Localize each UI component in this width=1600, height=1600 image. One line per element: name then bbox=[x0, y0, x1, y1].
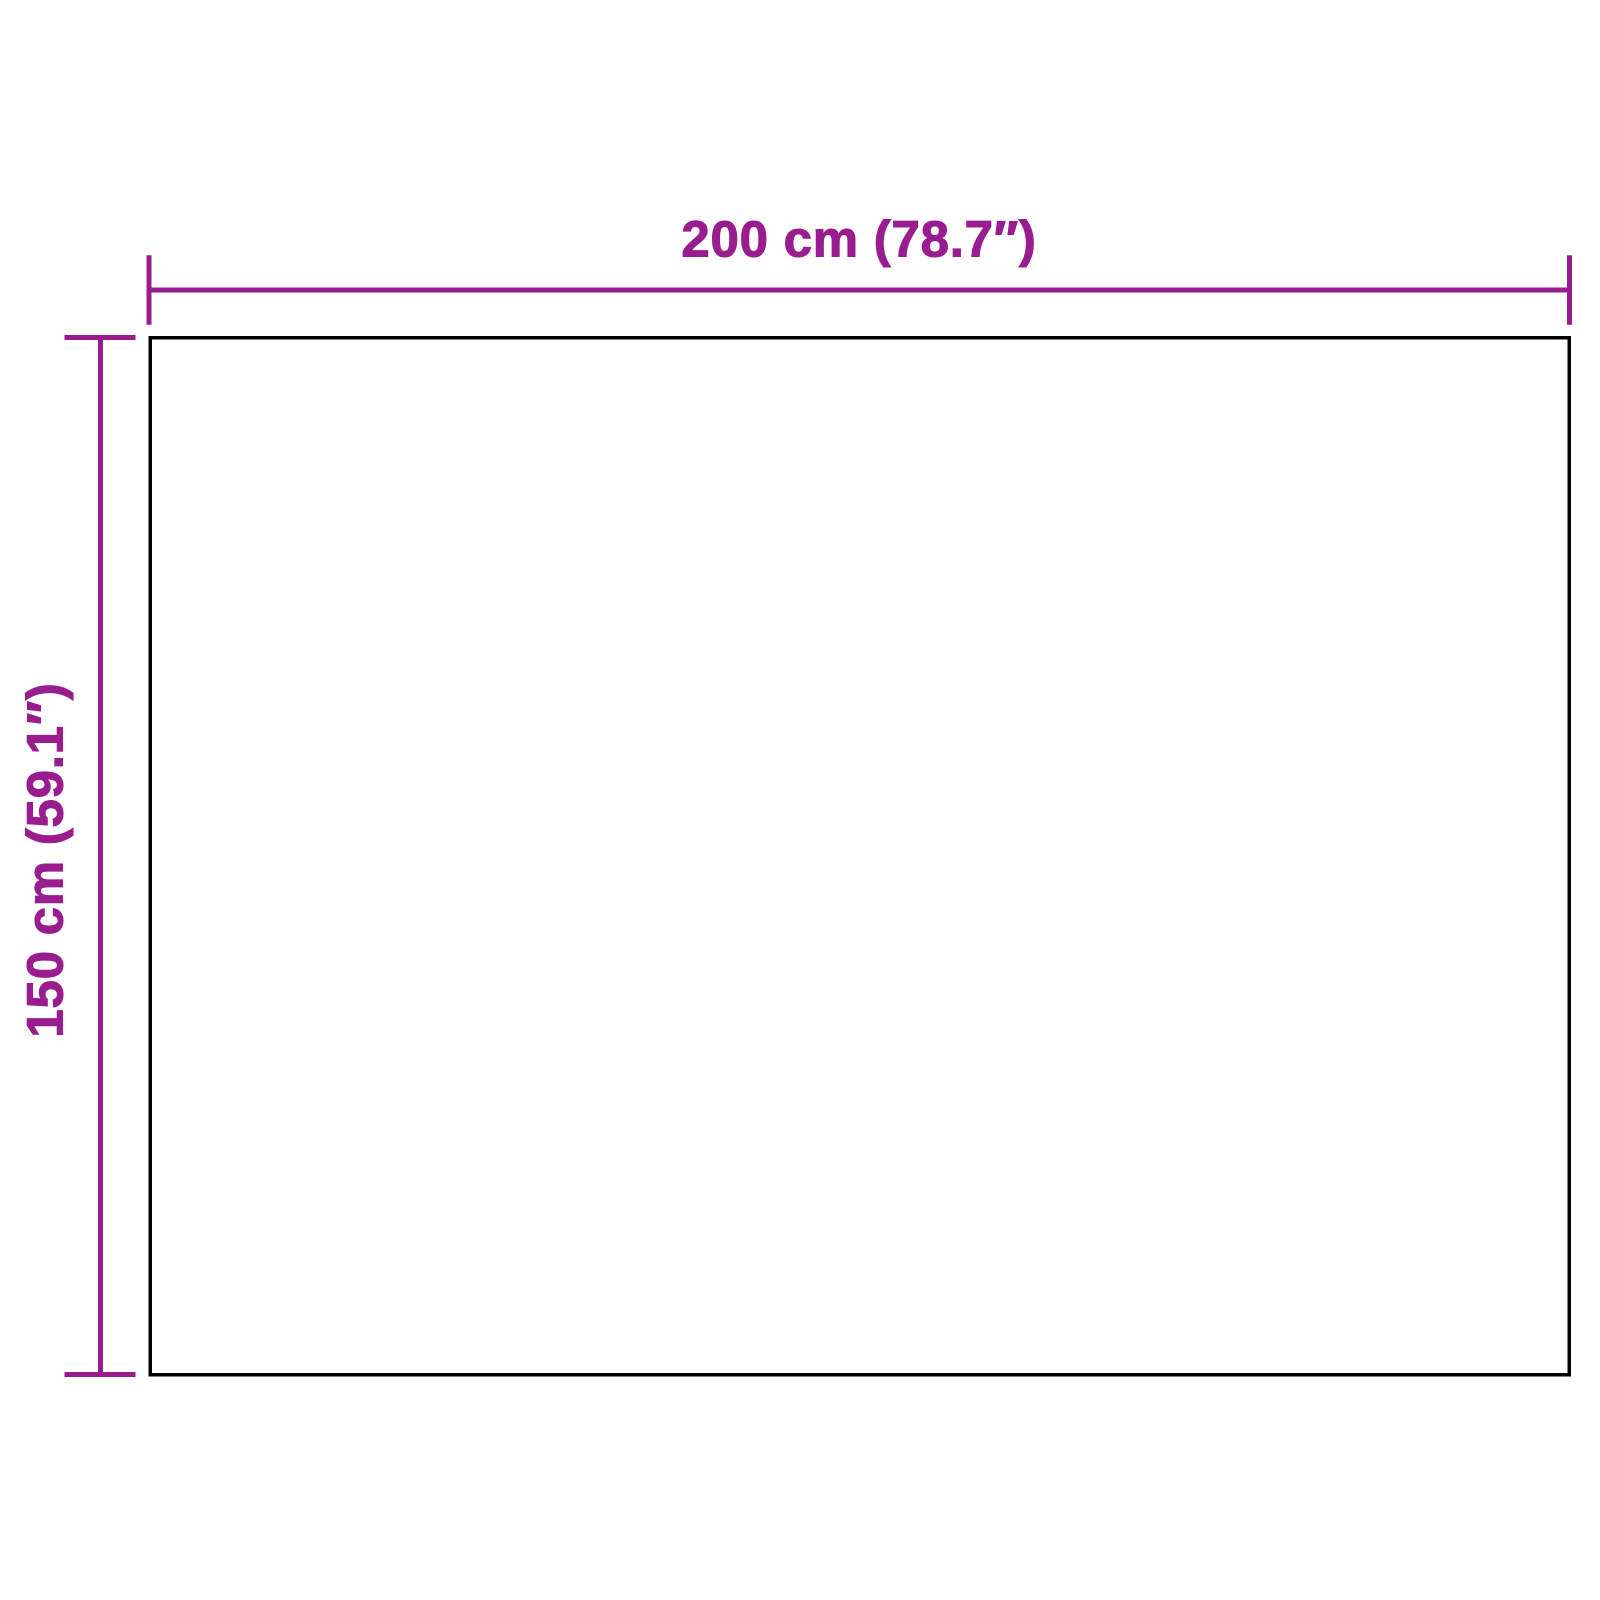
svg-text:200 cm (78.7″): 200 cm (78.7″) bbox=[681, 211, 1036, 268]
svg-text:150 cm (59.1″): 150 cm (59.1″) bbox=[17, 682, 74, 1037]
